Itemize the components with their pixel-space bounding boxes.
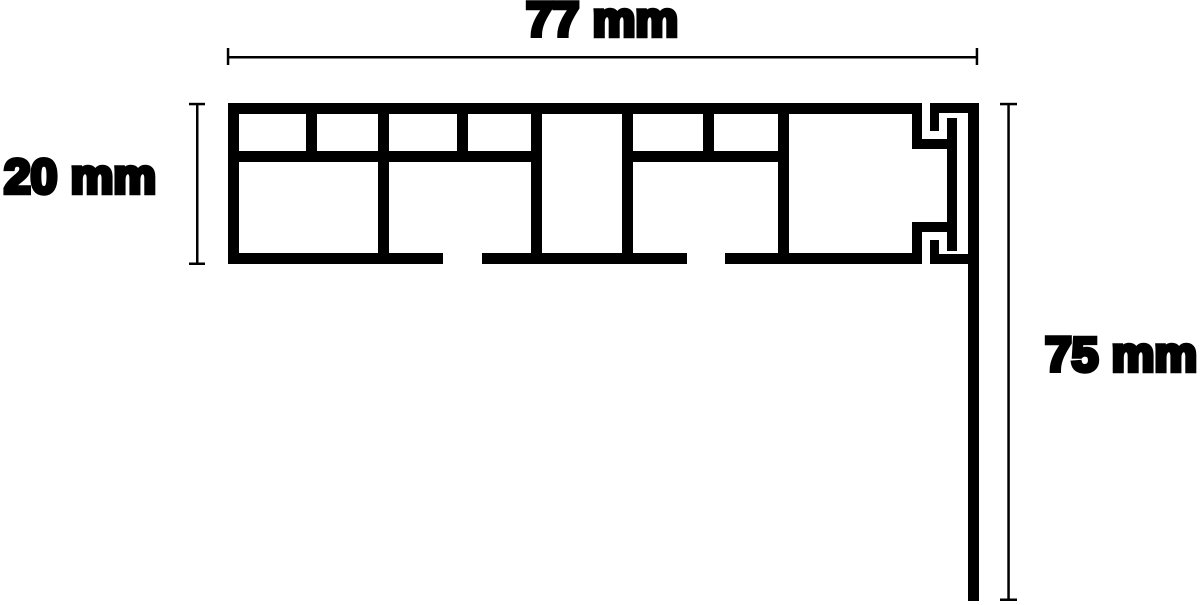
svg-text:77 mm: 77 mm (526, 0, 678, 47)
svg-text:20 mm: 20 mm (4, 151, 156, 204)
svg-text:75 mm: 75 mm (1045, 329, 1197, 382)
